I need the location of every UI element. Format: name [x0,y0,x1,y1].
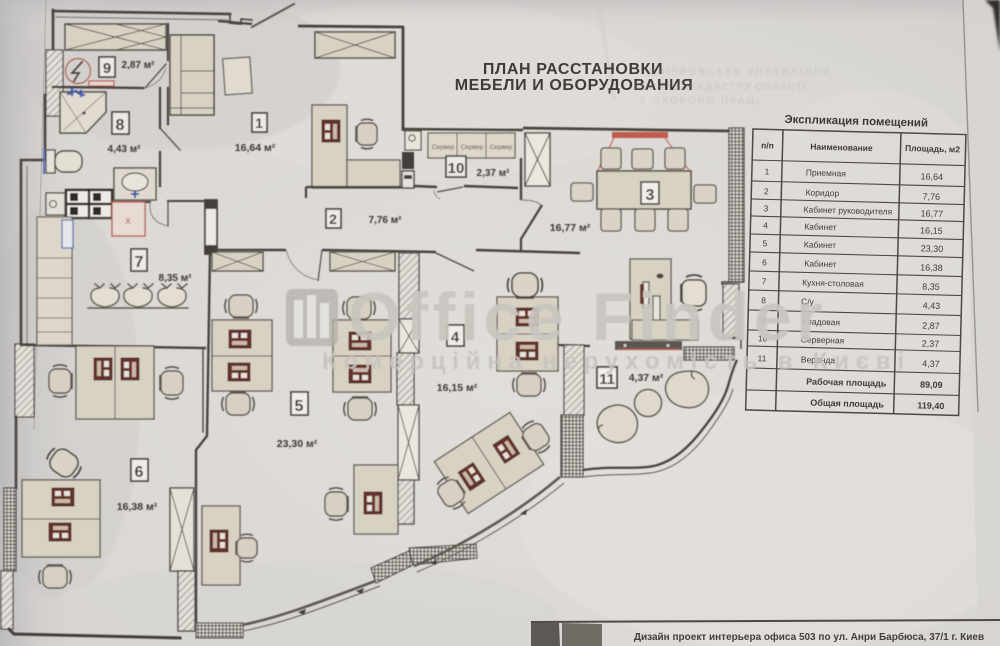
svg-text:Комерційна нерухомість в Києві: Комерційна нерухомість в Києві [322,348,911,375]
svg-text:Office Finder: Office Finder [348,279,827,355]
